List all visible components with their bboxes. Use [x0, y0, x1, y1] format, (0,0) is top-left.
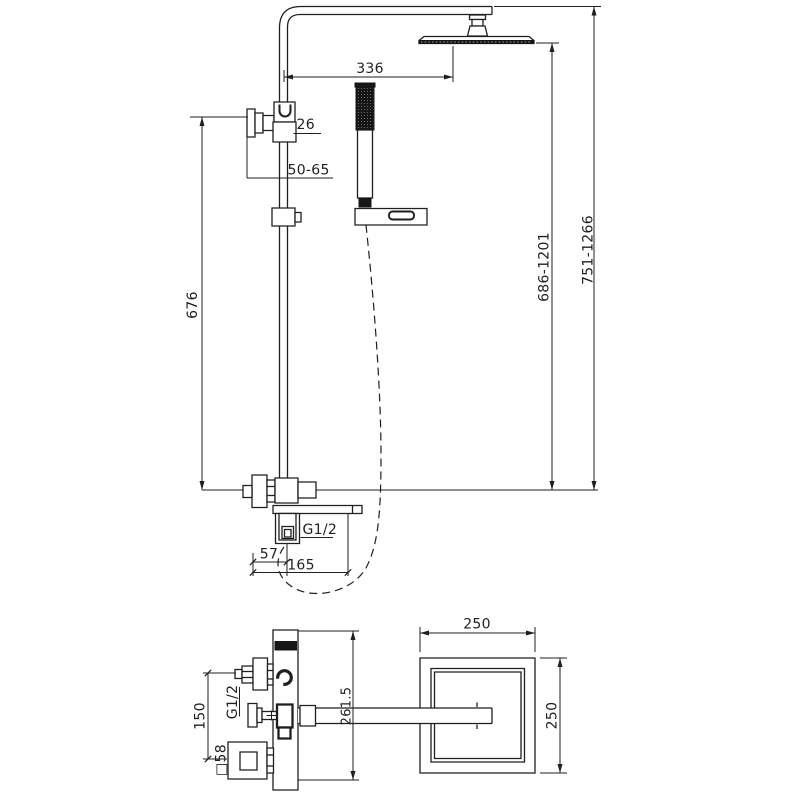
- rain-shower-head: [419, 37, 534, 44]
- handle-hex: [267, 480, 275, 502]
- front-view: 751-1266 686-1201 336: [185, 7, 601, 594]
- dim-head-width-label: 250: [463, 617, 491, 633]
- handle-stem: [243, 486, 252, 498]
- shower-head-connector: [468, 15, 488, 36]
- thread-label-front-text: G1/2: [303, 522, 338, 538]
- bracket-clamp-bottom: [273, 122, 296, 142]
- wall-flange: [247, 109, 255, 137]
- technical-drawing-page: 751-1266 686-1201 336: [0, 0, 800, 800]
- outlet-thread: [285, 530, 292, 538]
- thread-label-plan: G1/2: [225, 685, 241, 720]
- dim-wall-distance-label: 50-65: [288, 163, 330, 179]
- bracket-nut: [255, 113, 263, 133]
- mixer-body: [275, 478, 298, 503]
- top-view: 250 250 261.5 150: [193, 617, 568, 791]
- thread-label-front: G1/2: [301, 522, 338, 538]
- hand-shower-handle: [358, 130, 373, 198]
- inlet-flange-top: [253, 658, 268, 690]
- pivot-joint-plan: [248, 704, 293, 739]
- wall-bracket: [247, 102, 296, 142]
- dim-rail-height: 676: [185, 117, 248, 490]
- wall-inlet-bottom: [228, 742, 274, 779]
- bracket-clamp-top: [274, 102, 295, 122]
- pivot-block-lower: [279, 728, 291, 739]
- hand-shower-cap: [355, 83, 375, 87]
- hand-shower-holder: [355, 209, 427, 226]
- dim-spout-length-label: 165: [287, 558, 315, 574]
- thread-label-plan-text: G1/2: [225, 685, 241, 720]
- dim-head-depth-label: 250: [545, 702, 561, 730]
- arm-sleeve-plan: [300, 706, 316, 727]
- rail-slider: [272, 208, 301, 226]
- dim-rail-height-label: 676: [185, 291, 201, 319]
- hose-connector: [359, 198, 371, 207]
- slider-knob: [295, 213, 301, 223]
- dim-arm-length: 336: [284, 46, 453, 82]
- dim-inlet-spacing-label: 150: [193, 702, 209, 730]
- dim-pipe-width: 26: [294, 117, 322, 134]
- shower-arm-plan: [298, 703, 492, 730]
- column-cap-plan: [275, 642, 297, 651]
- hand-shower-head: [356, 87, 374, 130]
- mixer-knob: [298, 482, 316, 498]
- pivot-block: [277, 705, 293, 728]
- dim-head-height: 686-1201: [536, 43, 559, 490]
- dim-head-depth: 250: [540, 658, 567, 773]
- spout: [273, 506, 362, 514]
- dim-total-height-label: 751-1266: [581, 215, 597, 285]
- dim-head-height-label: 686-1201: [537, 232, 553, 302]
- hand-shower: [355, 83, 375, 207]
- shower-column-drawing: 751-1266 686-1201 336: [0, 0, 800, 800]
- dim-arm-projection-label: 261.5: [340, 687, 355, 726]
- dim-escutcheon-label: □58: [214, 744, 230, 776]
- dim-head-width: 250: [420, 617, 535, 653]
- dim-arm-length-label: 336: [356, 61, 384, 77]
- handle-flange: [252, 475, 267, 508]
- dim-outlet-offset-label: 57: [260, 547, 278, 563]
- dim-pipe-width-label: 26: [297, 117, 315, 133]
